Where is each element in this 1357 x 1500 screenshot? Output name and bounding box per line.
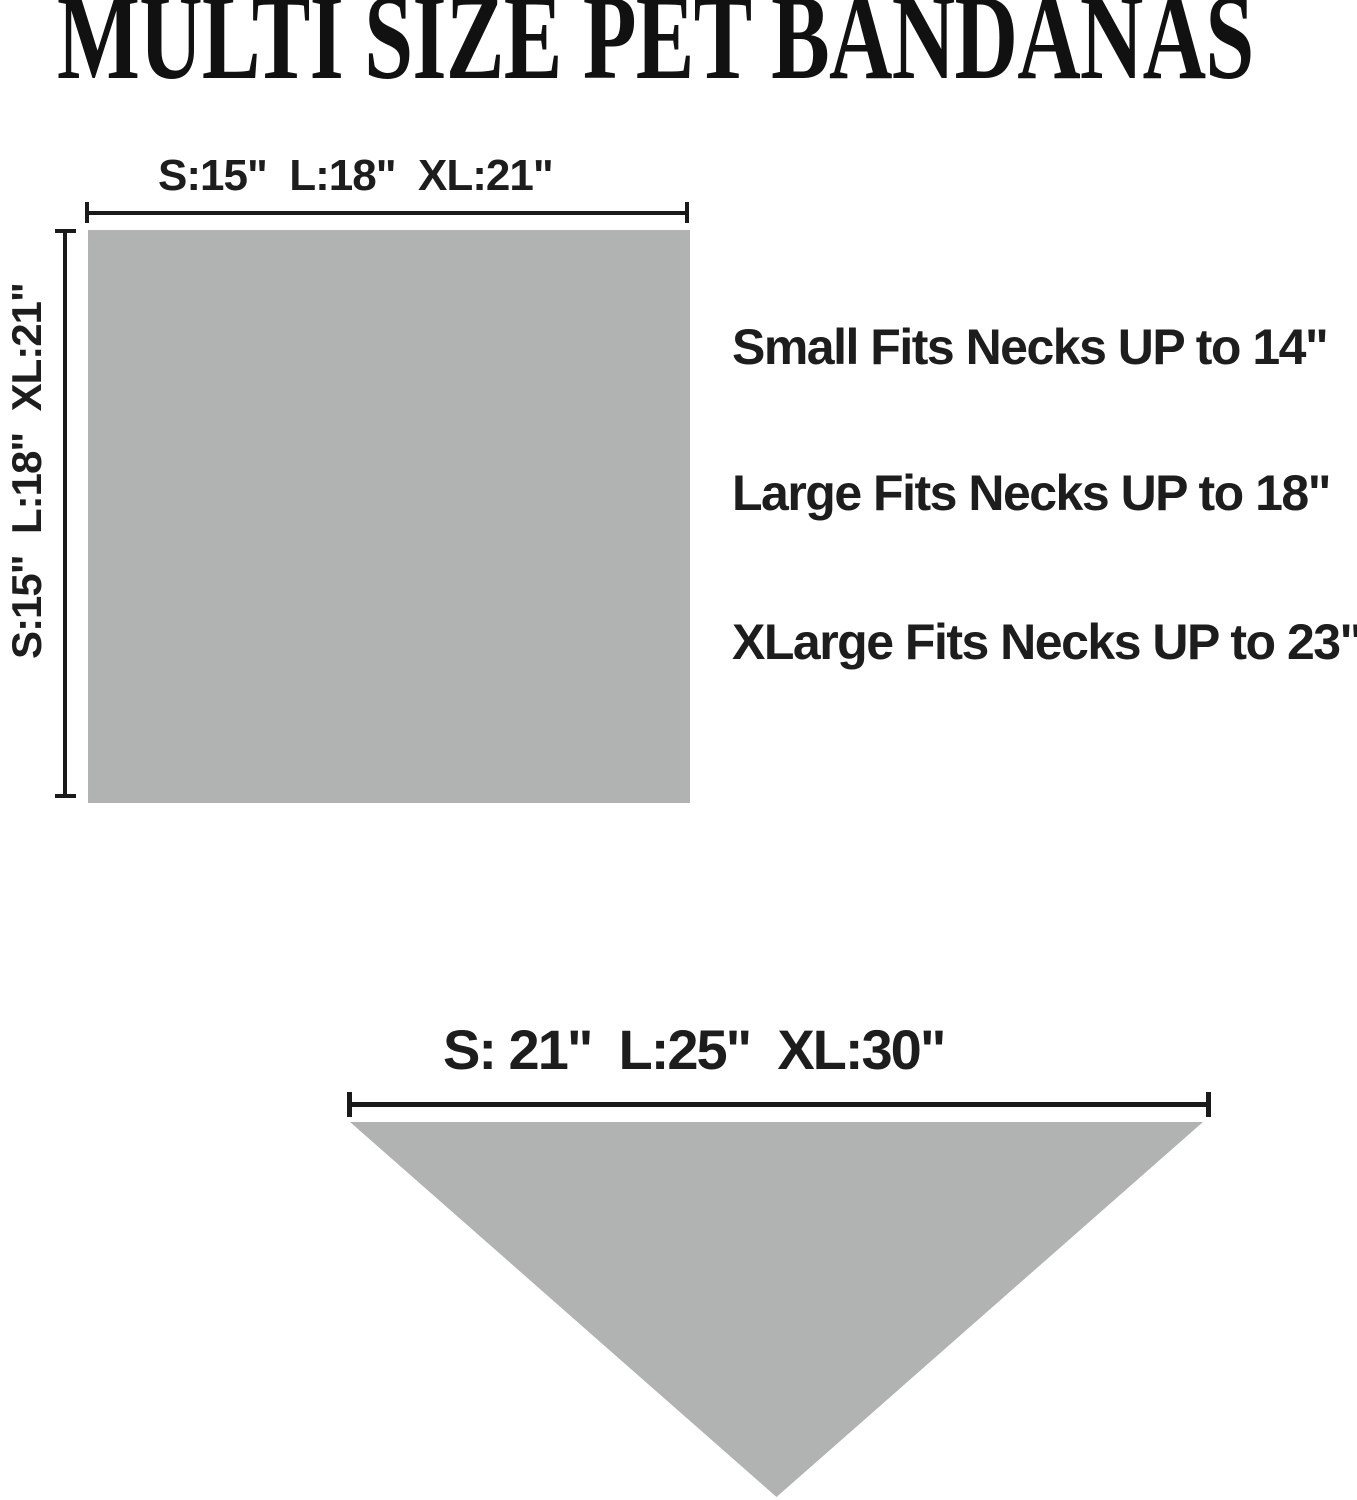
square-height-label: S:15" L:18" XL:21" bbox=[2, 283, 52, 659]
fit-note-large: Large Fits Necks UP to 18" bbox=[732, 463, 1330, 523]
square-width-label: S:15" L:18" XL:21" bbox=[158, 150, 553, 202]
triangle-width-dimension-line bbox=[349, 1102, 1209, 1107]
square-width-dimension-tick-left bbox=[85, 202, 89, 223]
triangle-width-dimension-tick-left bbox=[347, 1092, 352, 1117]
bandana-triangle-shape bbox=[350, 1122, 1203, 1497]
square-width-dimension-tick-right bbox=[685, 202, 689, 223]
triangle-width-label: S: 21" L:25" XL:30" bbox=[443, 1016, 944, 1083]
product-size-infographic: MULTI SIZE PET BANDANAS S:15" L:18" XL:2… bbox=[0, 0, 1357, 1500]
fit-note-small: Small Fits Necks UP to 14" bbox=[732, 317, 1327, 377]
fit-note-xlarge: XLarge Fits Necks UP to 23" bbox=[732, 612, 1357, 672]
bandana-square-shape bbox=[88, 230, 690, 803]
square-width-dimension-line bbox=[87, 211, 688, 215]
square-height-dimension-line bbox=[63, 230, 67, 797]
square-height-dimension-tick-top bbox=[55, 229, 76, 233]
triangle-width-dimension-tick-right bbox=[1206, 1092, 1211, 1117]
page-title: MULTI SIZE PET BANDANAS bbox=[57, 0, 1253, 105]
square-height-dimension-tick-bottom bbox=[55, 794, 76, 798]
